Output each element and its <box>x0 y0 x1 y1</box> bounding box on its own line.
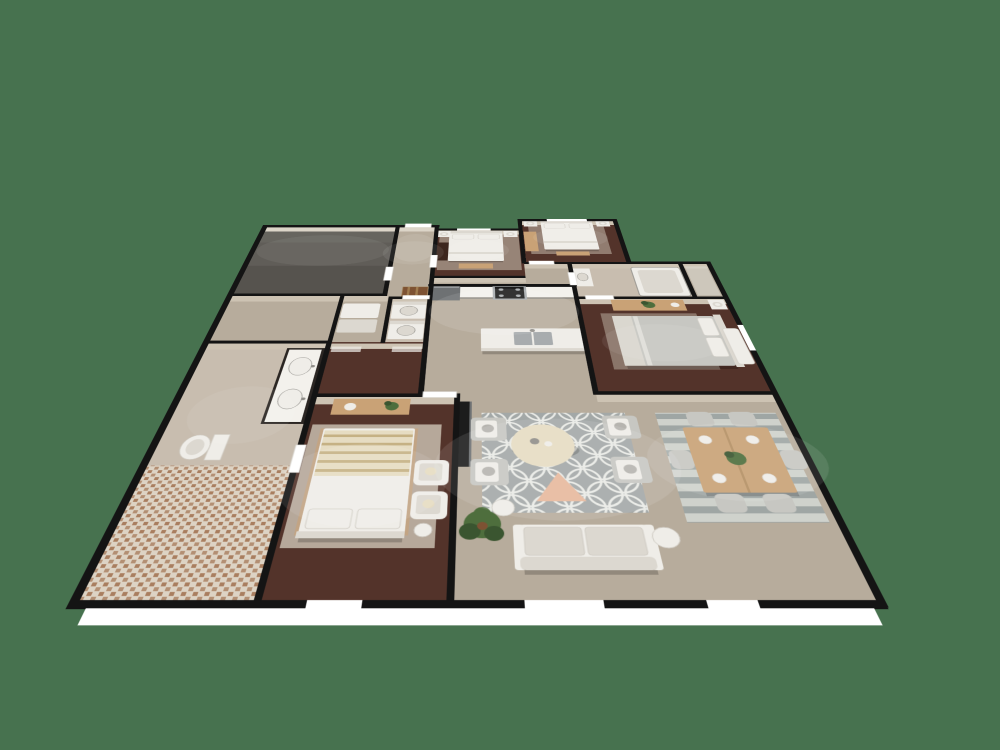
sofa <box>513 525 666 575</box>
bedroom3-nightstand-east <box>595 221 610 227</box>
floorplan-3d-container <box>55 219 899 610</box>
bedroom2-bench <box>459 264 493 269</box>
laundry-washer <box>390 302 426 319</box>
bedroom4-dresser <box>611 300 688 311</box>
floorplan-render-stage <box>0 0 1000 750</box>
bedroom3-nightstand-west <box>523 221 537 227</box>
exterior-cut-band <box>77 608 882 625</box>
garage-floor <box>230 226 398 295</box>
laundry-dryer <box>387 321 425 339</box>
floorplan-svg <box>41 219 912 636</box>
bedroom2-nightstand-west <box>437 231 450 237</box>
master-dresser <box>330 399 410 415</box>
bedroom3-bench <box>556 251 590 255</box>
bedroom2-nightstand-east <box>503 231 517 237</box>
